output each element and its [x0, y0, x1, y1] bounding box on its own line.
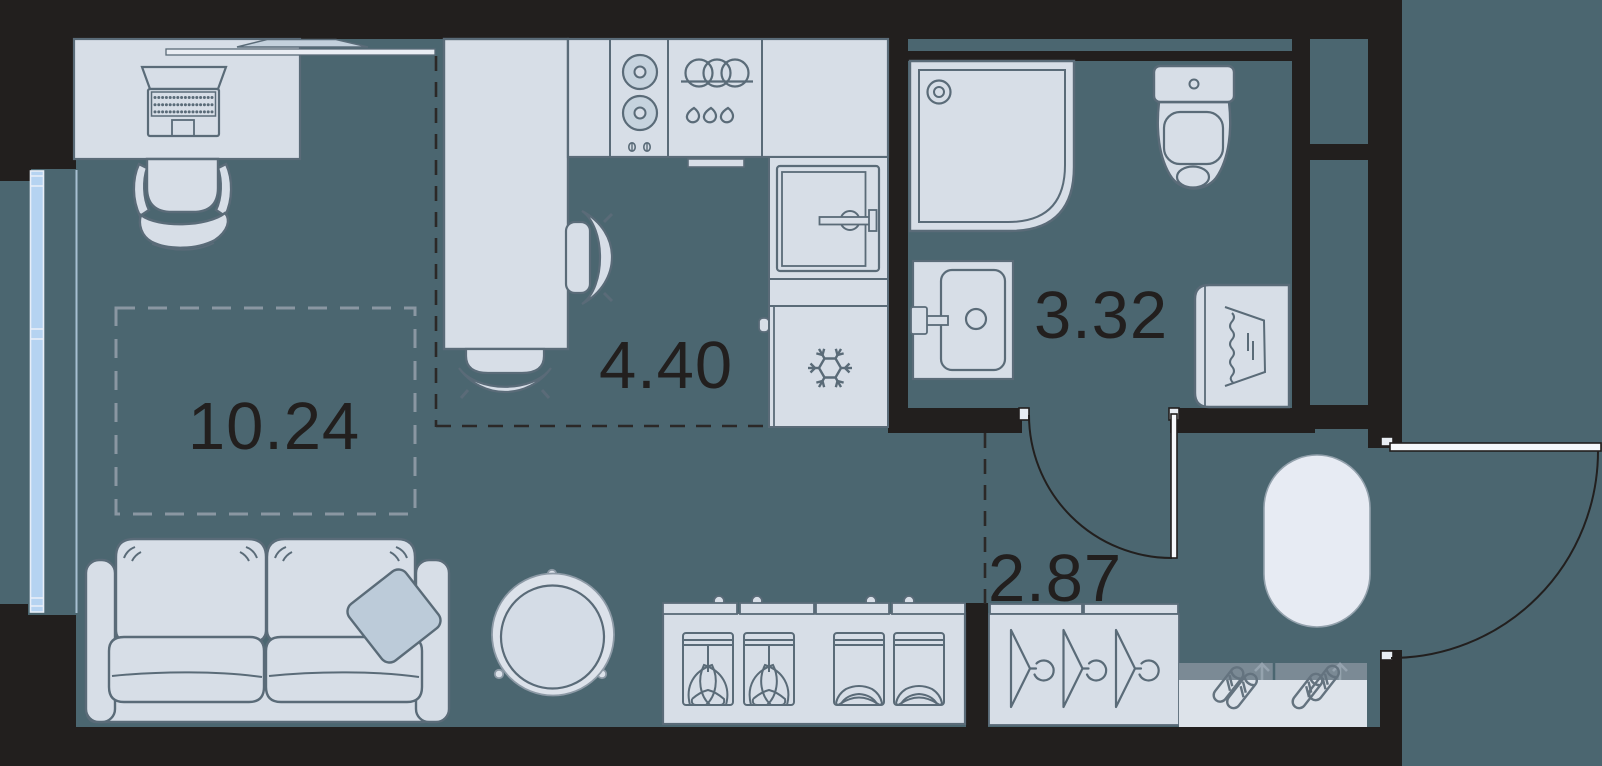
svg-text:3.32: 3.32: [1034, 278, 1168, 353]
svg-text:2.87: 2.87: [988, 541, 1122, 616]
svg-text:10.24: 10.24: [188, 389, 360, 464]
svg-text:4.40: 4.40: [599, 328, 733, 403]
